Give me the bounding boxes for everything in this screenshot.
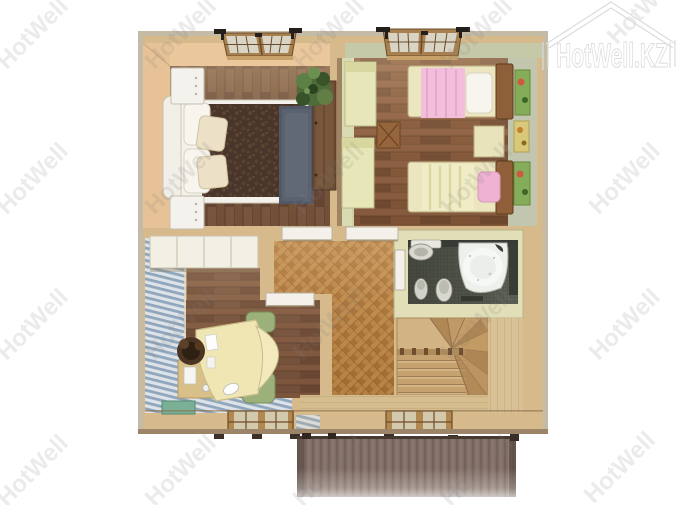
svg-text:HotWell.KZ: HotWell.KZ bbox=[556, 37, 668, 75]
